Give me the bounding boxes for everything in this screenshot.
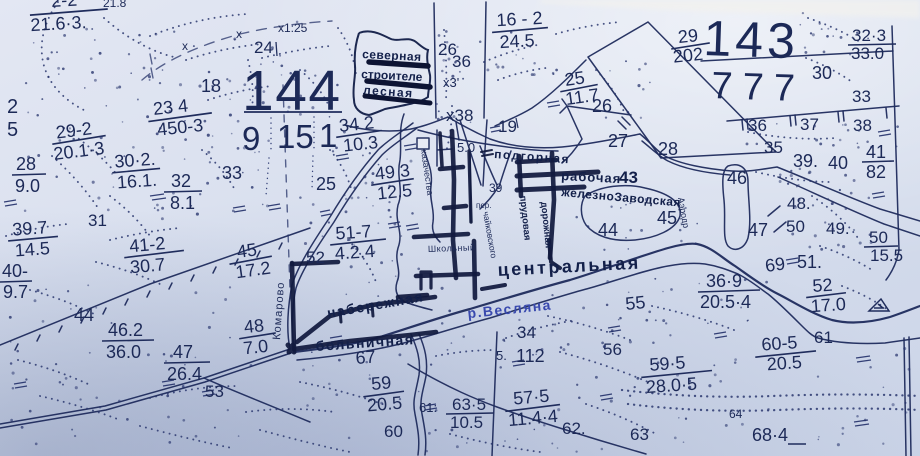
svg-text:48: 48 — [243, 315, 265, 337]
svg-text:10.3: 10.3 — [342, 132, 379, 156]
svg-text:39: 39 — [489, 181, 503, 195]
svg-text:60: 60 — [384, 422, 403, 441]
svg-text:50: 50 — [786, 217, 805, 236]
svg-text:х38: х38 — [446, 106, 473, 125]
svg-text:56: 56 — [603, 340, 622, 359]
svg-text:x: x — [236, 27, 242, 41]
svg-text:x: x — [182, 39, 188, 53]
svg-text:69: 69 — [764, 253, 787, 276]
svg-text:59·5: 59·5 — [649, 352, 686, 374]
svg-text:15.5: 15.5 — [870, 246, 903, 265]
svg-text:43: 43 — [619, 168, 638, 187]
svg-text:24: 24 — [254, 38, 273, 57]
svg-text:х3': х3' — [443, 75, 459, 90]
svg-text:30.7: 30.7 — [129, 254, 166, 277]
svg-text:5: 5 — [7, 119, 18, 141]
svg-text:47: 47 — [748, 220, 768, 240]
svg-text:68·4: 68·4 — [752, 425, 788, 445]
svg-text:21.6·3.: 21.6·3. — [30, 12, 87, 35]
svg-text:16.1.: 16.1. — [116, 170, 157, 193]
svg-text:144: 144 — [242, 59, 342, 123]
svg-text:12.5: 12.5 — [376, 180, 413, 204]
svg-text:39.7: 39.7 — [12, 217, 48, 239]
svg-text:49.: 49. — [826, 219, 850, 238]
svg-text:Школьный: Школьный — [428, 242, 476, 254]
svg-text:пер.: пер. — [476, 201, 491, 210]
svg-text:30: 30 — [812, 63, 832, 83]
svg-text:62.: 62. — [562, 419, 586, 438]
svg-text:202: 202 — [672, 44, 704, 67]
svg-text:30·2.: 30·2. — [114, 149, 156, 172]
svg-text:34: 34 — [517, 323, 536, 342]
svg-text:32·3: 32·3 — [852, 26, 886, 45]
svg-text:36.0: 36.0 — [106, 342, 141, 362]
svg-text:32: 32 — [171, 171, 191, 191]
svg-text:5.: 5. — [496, 348, 507, 363]
svg-text:46: 46 — [727, 168, 747, 188]
svg-text:61: 61 — [814, 328, 833, 347]
svg-text:28: 28 — [658, 139, 678, 159]
svg-text:47: 47 — [173, 342, 193, 362]
svg-text:50: 50 — [869, 228, 888, 247]
svg-text:рабочая: рабочая — [561, 168, 622, 186]
svg-text:35: 35 — [764, 138, 783, 157]
svg-text:26: 26 — [592, 96, 612, 116]
svg-text:16 - 2: 16 - 2 — [496, 8, 543, 30]
svg-text:48.: 48. — [787, 194, 811, 213]
svg-text:24.5: 24.5 — [499, 30, 535, 52]
svg-text:9: 9 — [242, 120, 260, 157]
svg-text:20.5: 20.5 — [766, 352, 802, 374]
svg-text:112: 112 — [516, 346, 545, 366]
svg-text:41: 41 — [866, 142, 886, 162]
svg-text:45: 45 — [657, 208, 677, 228]
svg-text:21.8: 21.8 — [103, 0, 127, 10]
svg-text:27: 27 — [608, 131, 628, 151]
svg-text:40: 40 — [828, 153, 848, 173]
svg-text:4.2.4: 4.2.4 — [334, 241, 375, 264]
svg-text:26.4: 26.4 — [167, 364, 202, 384]
svg-text:44: 44 — [74, 305, 94, 325]
svg-text:55: 55 — [624, 292, 646, 314]
svg-text:46.2: 46.2 — [108, 320, 143, 340]
svg-text:67: 67 — [355, 347, 376, 368]
svg-text:20.5·4: 20.5·4 — [700, 292, 751, 312]
svg-text:40-: 40- — [2, 261, 28, 281]
svg-text:10.5: 10.5 — [450, 413, 483, 432]
svg-text:28.0·5: 28.0·5 — [645, 374, 697, 398]
svg-text:20.5: 20.5 — [366, 393, 403, 416]
svg-text:52: 52 — [812, 275, 833, 296]
svg-text:18: 18 — [201, 76, 221, 96]
svg-text:14.5: 14.5 — [14, 238, 50, 260]
svg-text:44: 44 — [598, 220, 618, 240]
svg-text:х1:25: х1:25 — [278, 21, 308, 35]
svg-text:25: 25 — [316, 174, 336, 194]
svg-text:38: 38 — [853, 116, 872, 135]
svg-text:64: 64 — [729, 407, 743, 421]
svg-text:2: 2 — [7, 96, 18, 118]
svg-text:2-2: 2-2 — [51, 0, 78, 11]
svg-text:52: 52 — [306, 248, 325, 267]
svg-text:60-5: 60-5 — [761, 332, 798, 354]
svg-text:1: 1 — [319, 117, 337, 154]
svg-text:33: 33 — [222, 163, 242, 183]
svg-text:28: 28 — [16, 154, 36, 174]
svg-text:23 4: 23 4 — [152, 95, 189, 119]
svg-text:143: 143 — [703, 10, 800, 69]
svg-text:61:: 61: — [419, 400, 437, 415]
svg-text:37: 37 — [800, 115, 819, 134]
svg-text:57·5: 57·5 — [512, 386, 550, 409]
svg-text:53: 53 — [205, 382, 224, 401]
svg-text:63·5: 63·5 — [452, 395, 486, 414]
svg-text:33.0: 33.0 — [851, 44, 884, 63]
svg-text:51-7: 51-7 — [335, 221, 372, 243]
svg-text:45: 45 — [235, 239, 258, 262]
svg-text:5.0: 5.0 — [457, 140, 475, 155]
svg-text:39.: 39. — [793, 151, 818, 171]
svg-text:19: 19 — [498, 117, 517, 136]
svg-text:777: 777 — [711, 65, 806, 110]
svg-text:82: 82 — [866, 162, 886, 182]
svg-text:9.0: 9.0 — [15, 176, 40, 196]
svg-text:31: 31 — [88, 211, 107, 230]
svg-text:17.0: 17.0 — [810, 294, 846, 316]
svg-text:36·9: 36·9 — [706, 271, 742, 291]
svg-text:9.7: 9.7 — [3, 282, 28, 302]
svg-text:7.0: 7.0 — [242, 336, 269, 359]
svg-text:51.: 51. — [797, 252, 822, 272]
svg-text:8.1: 8.1 — [170, 193, 195, 213]
svg-text:63: 63 — [630, 425, 649, 444]
svg-text:36: 36 — [748, 116, 767, 135]
svg-text:15: 15 — [277, 118, 314, 155]
svg-text:59: 59 — [370, 372, 392, 394]
svg-text:33: 33 — [852, 87, 871, 106]
